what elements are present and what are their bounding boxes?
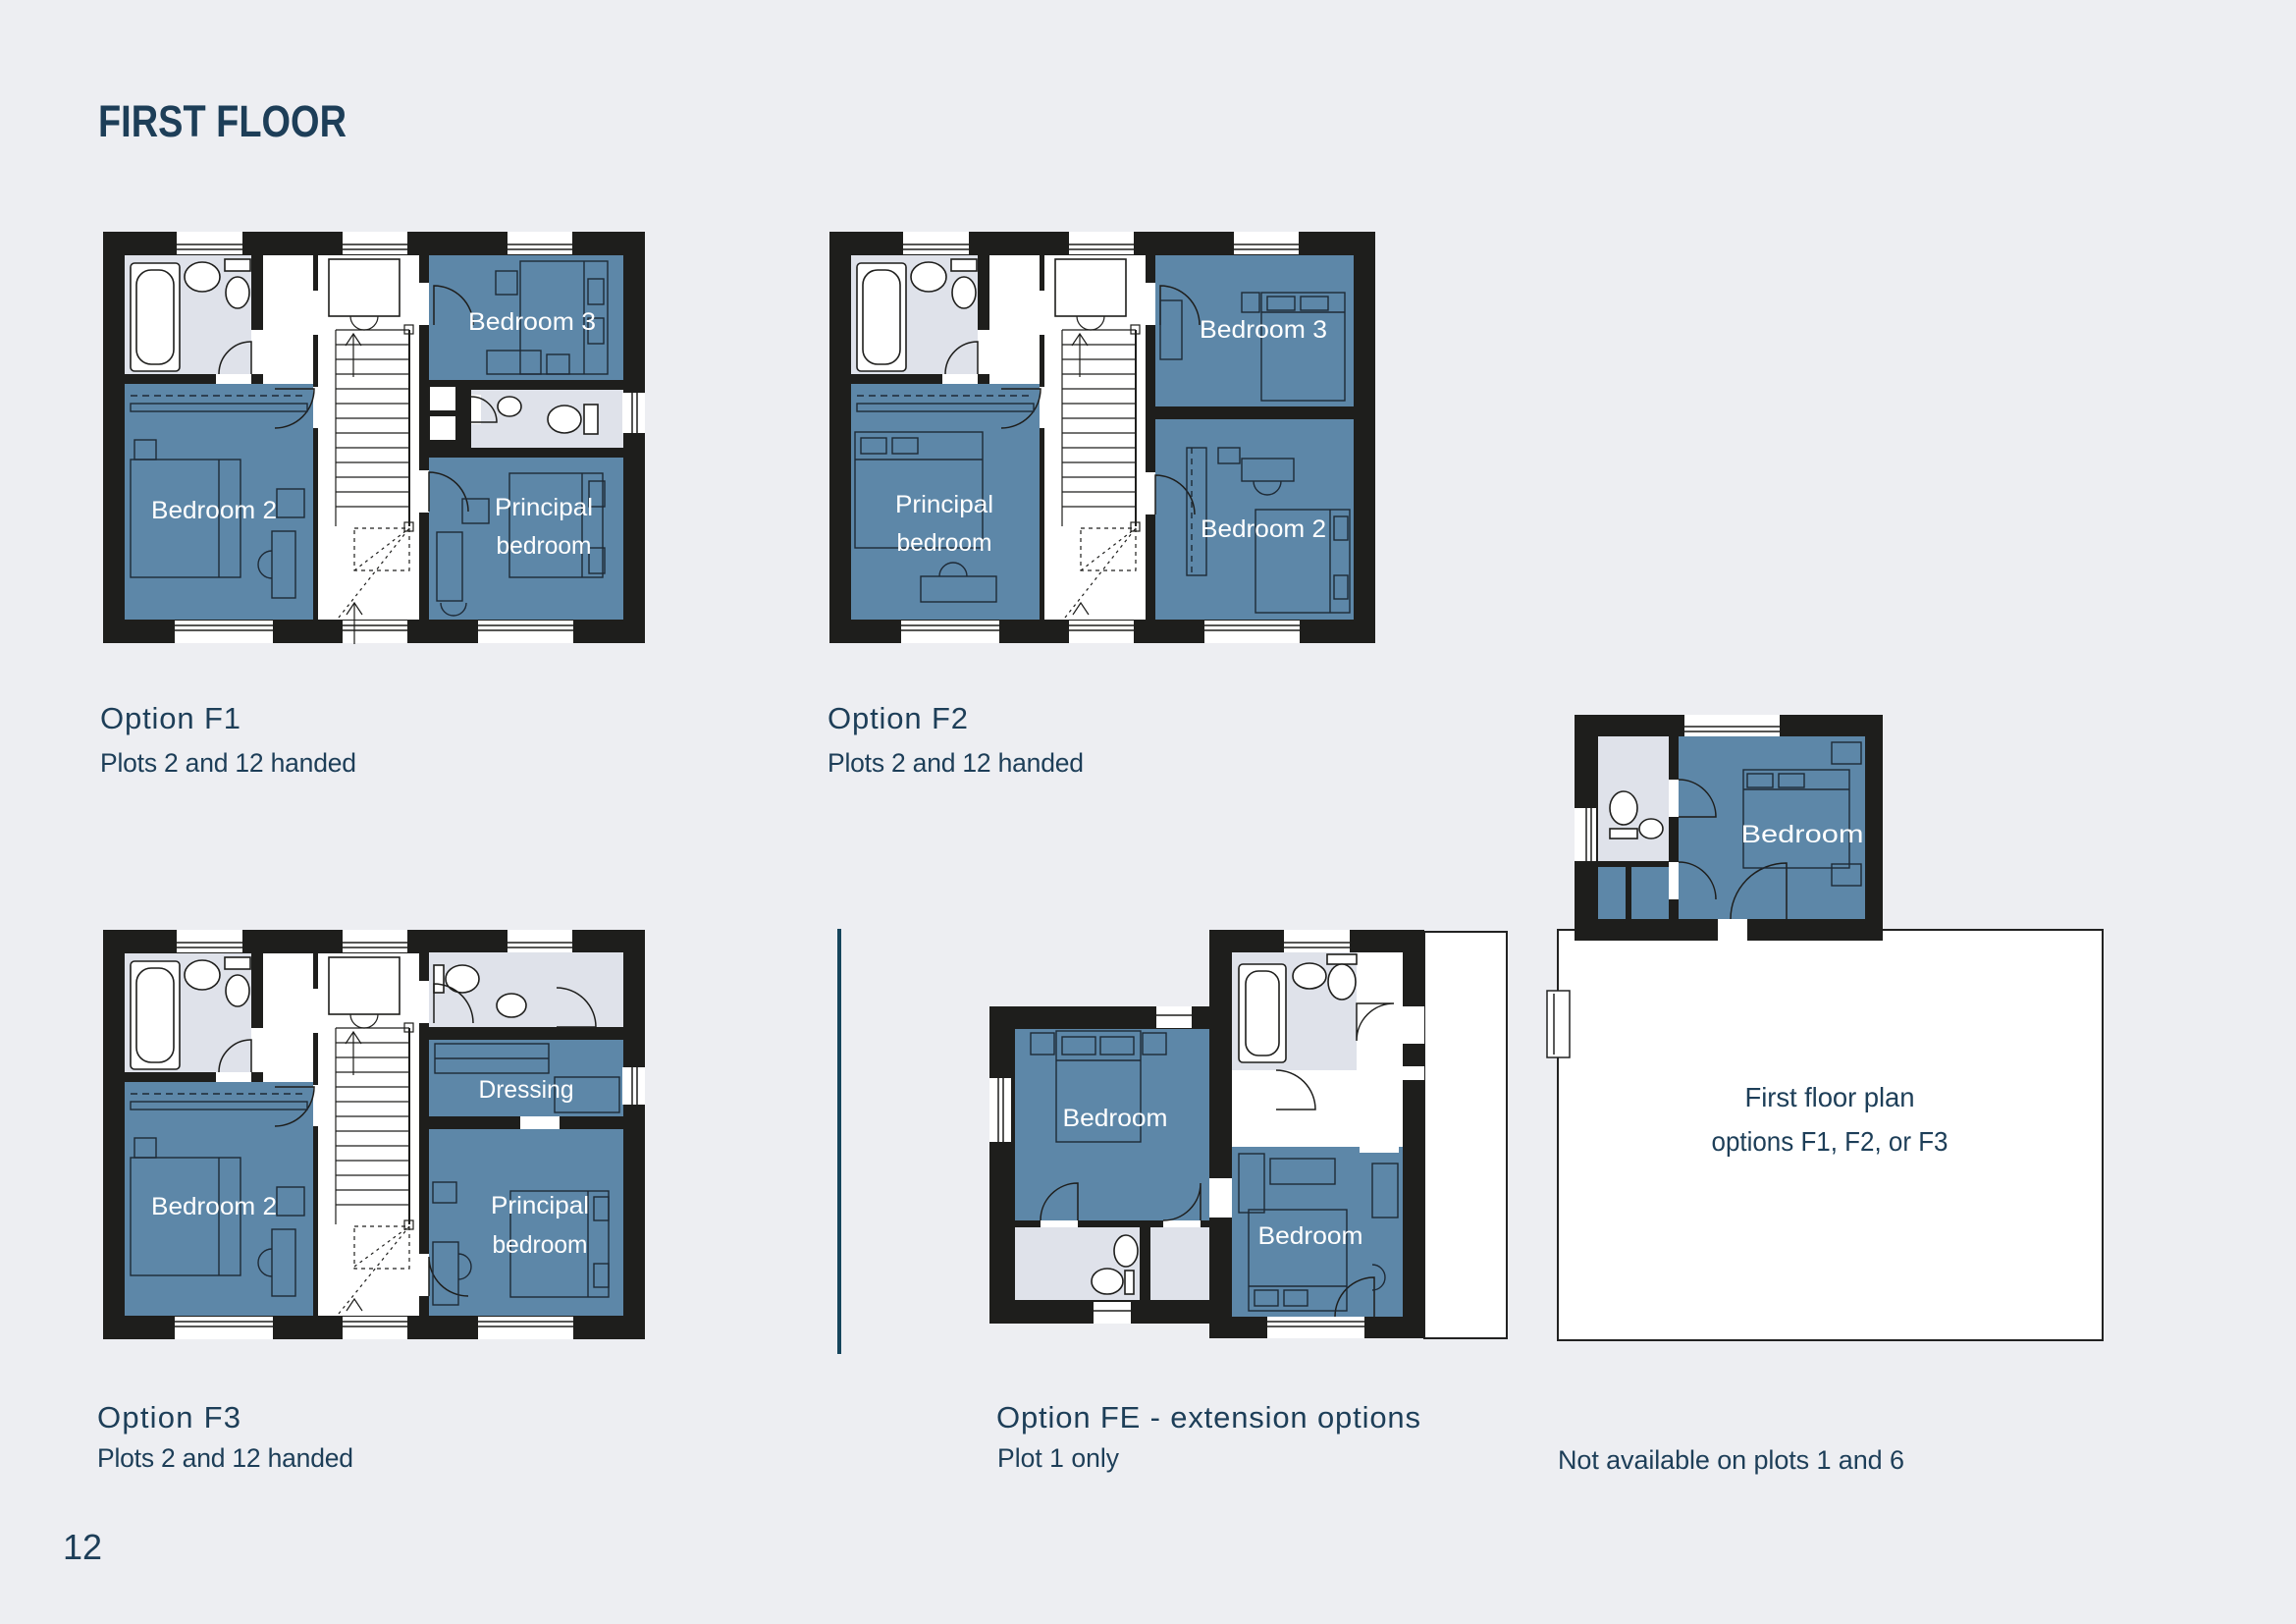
svg-text:Plots 2 and 12 handed: Plots 2 and 12 handed [828, 748, 1084, 778]
svg-text:Option F2: Option F2 [828, 701, 968, 735]
svg-text:Option F3: Option F3 [97, 1400, 240, 1435]
svg-text:Bedroom 3: Bedroom 3 [468, 308, 596, 336]
svg-text:Principal: Principal [895, 491, 993, 518]
svg-text:Plots 2 and 12 handed: Plots 2 and 12 handed [100, 748, 356, 778]
svg-text:Principal: Principal [491, 1192, 589, 1219]
svg-text:12: 12 [63, 1527, 102, 1567]
svg-text:Dressing: Dressing [479, 1076, 574, 1104]
svg-text:FIRST FLOOR: FIRST FLOOR [98, 96, 347, 146]
svg-text:Bedroom: Bedroom [1741, 821, 1864, 848]
svg-text:Bedroom: Bedroom [1258, 1222, 1363, 1250]
svg-text:Option F1: Option F1 [100, 701, 240, 735]
svg-text:Principal: Principal [495, 494, 593, 521]
svg-text:Not available on plots 1 and 6: Not available on plots 1 and 6 [1558, 1445, 1904, 1475]
svg-text:options F1, F2, or F3: options F1, F2, or F3 [1712, 1126, 1949, 1157]
svg-text:First floor plan: First floor plan [1745, 1082, 1915, 1112]
svg-text:bedroom: bedroom [497, 532, 592, 560]
svg-text:Bedroom 3: Bedroom 3 [1200, 316, 1327, 344]
svg-text:Bedroom: Bedroom [1063, 1105, 1168, 1132]
svg-text:Bedroom 2: Bedroom 2 [151, 1193, 277, 1220]
svg-text:Option FE - extension options: Option FE - extension options [996, 1400, 1420, 1435]
svg-text:Bedroom 2: Bedroom 2 [151, 497, 277, 524]
svg-text:bedroom: bedroom [897, 529, 992, 557]
svg-text:Plot 1 only: Plot 1 only [997, 1443, 1120, 1473]
svg-text:Bedroom 2: Bedroom 2 [1201, 515, 1326, 543]
svg-text:bedroom: bedroom [493, 1231, 588, 1259]
svg-text:Plots 2 and 12 handed: Plots 2 and 12 handed [97, 1443, 353, 1473]
